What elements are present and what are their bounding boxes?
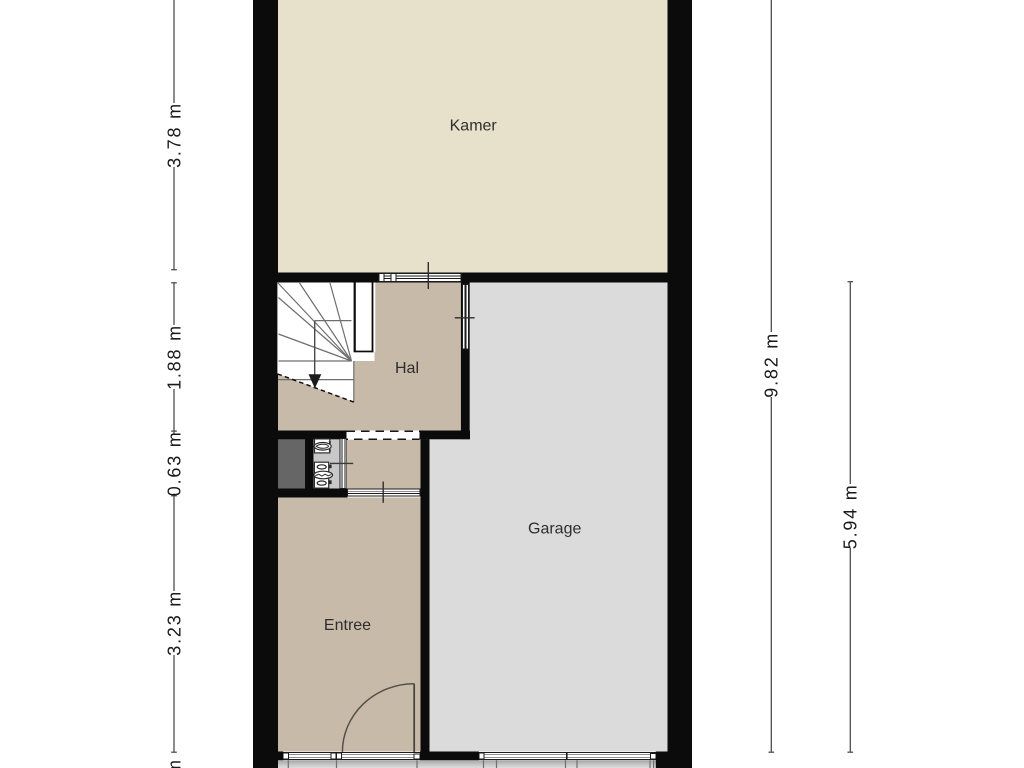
- svg-text:Garage: Garage: [528, 520, 581, 537]
- svg-text:Kamer: Kamer: [450, 117, 498, 134]
- svg-text:1.88 m: 1.88 m: [165, 324, 185, 390]
- svg-text:3.78 m: 3.78 m: [165, 102, 185, 168]
- svg-text:Hal: Hal: [395, 360, 419, 377]
- svg-text:Entree: Entree: [324, 617, 371, 634]
- svg-text:m: m: [165, 758, 185, 768]
- svg-text:3.23 m: 3.23 m: [165, 590, 185, 656]
- svg-text:9.82 m: 9.82 m: [762, 332, 782, 398]
- svg-text:5.94 m: 5.94 m: [841, 483, 861, 549]
- svg-text:0.63 m: 0.63 m: [165, 430, 185, 496]
